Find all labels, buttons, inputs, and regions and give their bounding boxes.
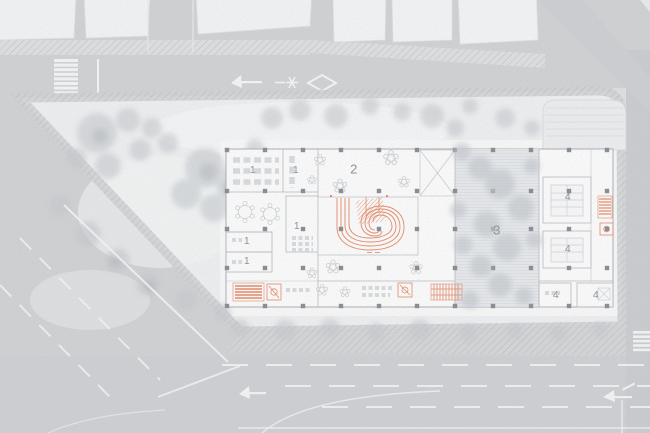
site-plan-canvas: 11111234444	[0, 0, 650, 433]
room-label-room-4-a: 4	[565, 192, 571, 203]
room-label-room-4-c: 4	[553, 290, 559, 301]
room-label-room-1-a: 1	[250, 165, 256, 176]
room-label-room-1-c: 1	[294, 221, 300, 232]
room-label-room-4-b: 4	[565, 244, 571, 255]
room-label-room-4-d: 4	[593, 290, 599, 301]
room-label-room-1-d: 1	[244, 236, 250, 247]
room-label-court-3: 3	[493, 224, 501, 237]
room-label-hall-2: 2	[350, 163, 358, 176]
room-labels-layer: 11111234444	[0, 0, 650, 433]
room-label-room-1-b: 1	[293, 165, 299, 176]
room-label-room-1-e: 1	[244, 256, 250, 267]
